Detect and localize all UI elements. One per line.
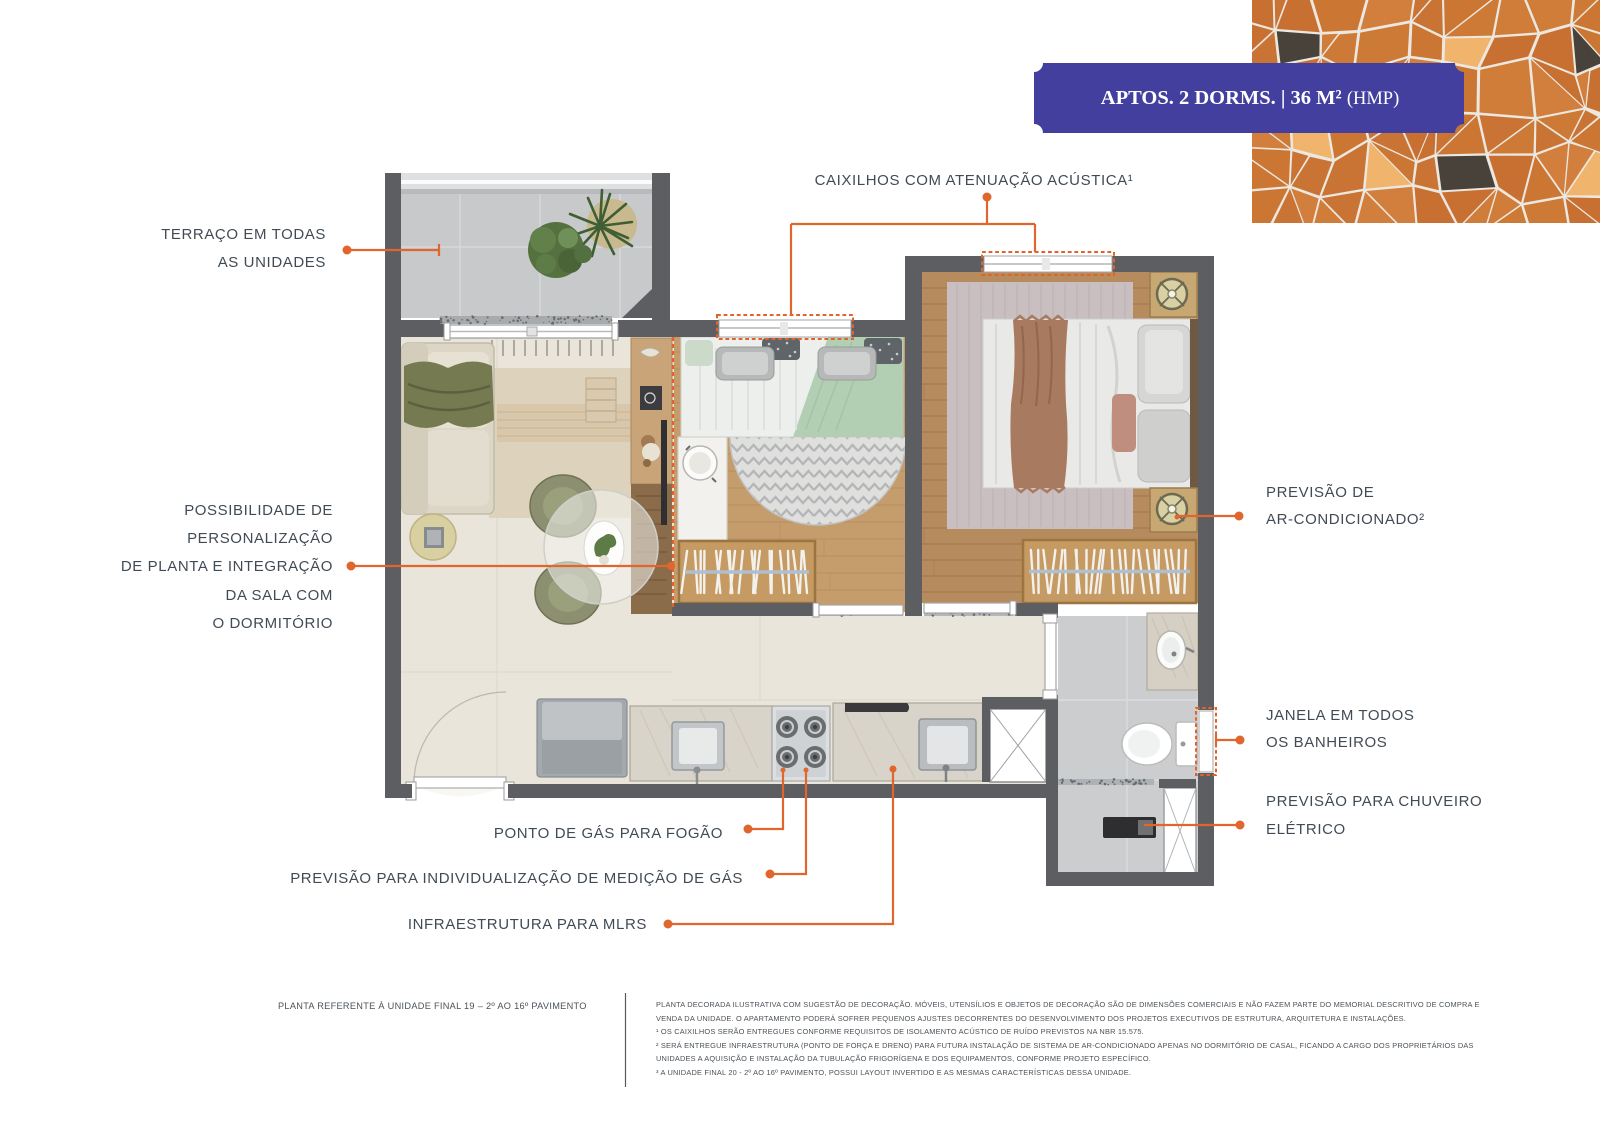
svg-text:UNIDADES A AQUISIÇÃO E INSTALA: UNIDADES A AQUISIÇÃO E INSTALAÇÃO DA TUB… (656, 1054, 1151, 1063)
svg-text:DE PLANTA E INTEGRAÇÃO: DE PLANTA E INTEGRAÇÃO (121, 558, 333, 575)
svg-text:APTOS. 2 DORMS. | 36 M² (HMP): APTOS. 2 DORMS. | 36 M² (HMP) (1101, 87, 1399, 109)
svg-text:PLANTA REFERENTE À UNIDADE FIN: PLANTA REFERENTE À UNIDADE FINAL 19 – 2º… (278, 1001, 587, 1011)
svg-text:JANELA EM TODOS: JANELA EM TODOS (1266, 707, 1415, 724)
svg-text:ELÉTRICO: ELÉTRICO (1266, 821, 1346, 838)
svg-text:PLANTA DECORADA ILUSTRATIVA CO: PLANTA DECORADA ILUSTRATIVA COM SUGESTÃO… (656, 1000, 1480, 1009)
svg-text:POSSIBILIDADE DE: POSSIBILIDADE DE (184, 502, 333, 519)
svg-text:CAIXILHOS COM ATENUAÇÃO ACÚSTI: CAIXILHOS COM ATENUAÇÃO ACÚSTICA¹ (815, 172, 1134, 189)
svg-text:O DORMITÓRIO: O DORMITÓRIO (212, 615, 333, 632)
svg-text:PREVISÃO DE: PREVISÃO DE (1266, 484, 1374, 501)
svg-text:PONTO DE GÁS PARA FOGÃO: PONTO DE GÁS PARA FOGÃO (494, 825, 723, 842)
svg-text:¹ OS CAIXILHOS SERÃO ENTREGUES: ¹ OS CAIXILHOS SERÃO ENTREGUES CONFORME … (656, 1027, 1144, 1036)
svg-text:AR-CONDICIONADO²: AR-CONDICIONADO² (1266, 511, 1425, 528)
svg-text:PREVISÃO PARA INDIVIDUALIZAÇÃO: PREVISÃO PARA INDIVIDUALIZAÇÃO DE MEDIÇÃ… (290, 870, 743, 887)
svg-text:TERRAÇO EM TODAS: TERRAÇO EM TODAS (161, 226, 326, 243)
svg-text:PERSONALIZAÇÃO: PERSONALIZAÇÃO (187, 530, 333, 547)
svg-text:² SERÁ ENTREGUE INFRAESTRUTURA: ² SERÁ ENTREGUE INFRAESTRUTURA (PONTO DE… (656, 1041, 1474, 1050)
svg-text:INFRAESTRUTURA PARA MLRS: INFRAESTRUTURA PARA MLRS (408, 916, 647, 933)
svg-text:OS BANHEIROS: OS BANHEIROS (1266, 734, 1387, 751)
svg-text:VENDA DA UNIDADE. O APARTAMENT: VENDA DA UNIDADE. O APARTAMENTO PODERÁ S… (656, 1014, 1406, 1023)
svg-text:AS UNIDADES: AS UNIDADES (218, 254, 326, 271)
svg-text:PREVISÃO PARA CHUVEIRO: PREVISÃO PARA CHUVEIRO (1266, 793, 1482, 810)
svg-text:DA SALA COM: DA SALA COM (226, 587, 333, 604)
svg-text:³ A UNIDADE FINAL 20 - 2º AO 1: ³ A UNIDADE FINAL 20 - 2º AO 16º PAVIMEN… (656, 1068, 1131, 1077)
